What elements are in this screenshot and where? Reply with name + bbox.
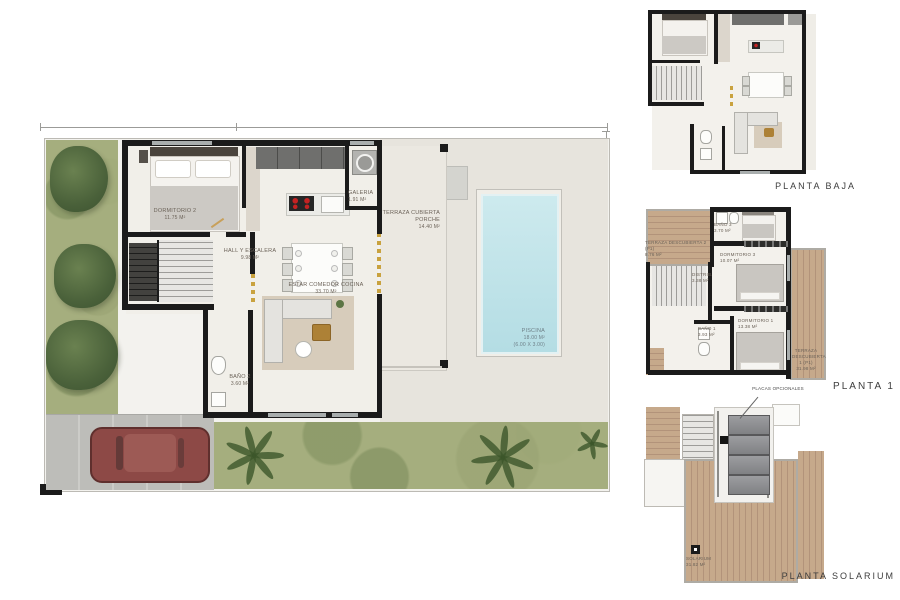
porch-edge-line (382, 366, 442, 368)
dimension-tick (602, 131, 610, 132)
dimension-line-top (40, 127, 608, 128)
wall (345, 206, 381, 210)
room-name: TERRAZA CUBIERTA PORCHE (382, 210, 440, 224)
chair (342, 247, 353, 260)
pb-sliding-door-marker (730, 86, 733, 106)
pb-wall (648, 102, 704, 106)
p1-wall (694, 320, 732, 324)
room-name: ESTAR COMEDOR COCINA (280, 282, 372, 289)
room-area: 31.82 m² (686, 562, 726, 568)
kitchen-sink (321, 196, 344, 213)
wall (226, 232, 246, 237)
room-name: TERRAZA DESCUBIERTA 2 (P1) (645, 240, 715, 252)
brochure-canvas: DORMITORIO 2 11.75 m² HALL Y ESCALERA 9.… (0, 0, 900, 600)
pb-bed-blanket (662, 36, 706, 54)
window (350, 141, 374, 145)
pb-window (740, 171, 770, 174)
p1-window (787, 330, 790, 360)
bathroom-sink (211, 392, 226, 407)
room-area: 3.93 m² (698, 332, 728, 338)
room-area: 33.70 m² (280, 289, 372, 296)
p1-bed-dorm3-pillows (740, 292, 780, 300)
small-plant (572, 424, 608, 458)
wall (122, 304, 214, 310)
placas-opcionales-annotation: PLACAS OPCIONALES (740, 386, 816, 392)
porch-pillar (440, 144, 448, 152)
p1-window (787, 255, 790, 281)
pb-wall (650, 60, 700, 63)
pb-chair (784, 76, 792, 86)
solar-panel (728, 435, 770, 455)
room-label-distrib: DISTRIB. 3.38 m² (692, 272, 722, 284)
room-area: 9.98 m² (205, 255, 295, 262)
p1-wall (708, 262, 712, 320)
p1-wardrobe (744, 241, 788, 247)
pb-dining-table (748, 72, 784, 98)
pb-wall (648, 10, 652, 106)
room-label-bano-3: BAÑO 3 3.70 m² (714, 222, 744, 234)
room-name: HALL Y ESCALERA (205, 248, 295, 255)
wall (248, 310, 253, 418)
covered-porch (380, 146, 447, 371)
pb-wall (802, 10, 806, 174)
pb-wall (722, 126, 725, 174)
sliding-door-marker (251, 272, 255, 302)
room-name: GALERIA (348, 190, 382, 197)
room-name: PISCINA (493, 328, 545, 335)
pb-wall (690, 124, 694, 174)
room-area: 3.60 m² (215, 381, 265, 388)
room-label-hall: HALL Y ESCALERA 9.98 m² (205, 248, 295, 262)
sofa-chaise (264, 299, 283, 363)
p1-wardrobe (744, 306, 788, 312)
room-area: 1.91 m² (348, 197, 382, 204)
sol-wood-strip-right (798, 451, 824, 579)
room-area: 10.07 m² (720, 258, 774, 264)
pb-wall (714, 10, 718, 64)
pb-stairs (652, 66, 702, 100)
solar-panel (728, 415, 770, 435)
cooktop (289, 196, 314, 211)
room-area: 14.40 m² (382, 224, 440, 231)
solar-panel (728, 455, 770, 475)
palm-tree (214, 418, 290, 486)
kitchen-cabinets (256, 147, 345, 169)
sol-wood-strip-tl (646, 407, 680, 461)
annotation-text: PLACAS OPCIONALES (740, 386, 816, 392)
pb-toilet (700, 130, 712, 144)
p1-bed-a-blanket (742, 224, 774, 238)
pb-chair (784, 86, 792, 96)
bed-headboard (150, 147, 238, 156)
coffee-table (295, 341, 312, 358)
pool-dimensions: (6.00 x 3.00) (493, 342, 545, 349)
room-label-piscina: PISCINA 18.00 m² (6.00 x 3.00) (493, 328, 545, 348)
room-label-bano-1: BAÑO 1 3.93 m² (698, 326, 728, 338)
pb-chair (742, 76, 750, 86)
p1-wall (714, 241, 744, 246)
washing-machine (352, 150, 377, 175)
planta-solarium-title: PLANTA SOLARIUM (765, 571, 895, 581)
pb-porch (806, 14, 816, 170)
p1-bath1-toilet (698, 342, 710, 356)
window (332, 413, 358, 417)
room-area: 3.70 m² (714, 228, 744, 234)
room-name: BAÑO 2 (215, 374, 265, 381)
pillow (155, 160, 191, 178)
place-setting (295, 250, 302, 257)
sliding-door-marker (377, 233, 381, 293)
room-label-solarium: SOLARIUM 31.82 m² (686, 556, 726, 568)
solar-panel (728, 475, 770, 495)
window (268, 413, 326, 417)
room-name: DORMITORIO 2 (140, 208, 210, 215)
pillow (195, 160, 231, 178)
room-label-porche: TERRAZA CUBIERTA PORCHE 14.40 m² (382, 210, 440, 231)
room-label-dormitorio-2: DORMITORIO 2 11.75 m² (140, 208, 210, 222)
place-setting (331, 250, 338, 257)
room-label-bano-2: BAÑO 2 3.60 m² (215, 374, 265, 388)
wall (122, 140, 128, 310)
room-label-estar: ESTAR COMEDOR COCINA 33.70 m² (280, 282, 372, 296)
room-name: TERRAZA DESCUBIERTA 1 (P1) (792, 348, 820, 366)
room-label-galeria: GALERIA 1.91 m² (348, 190, 382, 204)
plant-pot (336, 300, 344, 308)
room-area: 3.38 m² (692, 278, 722, 284)
pb-sink (700, 148, 712, 160)
armchair (312, 324, 331, 341)
pb-wardrobe (718, 12, 730, 62)
chair (282, 263, 293, 276)
room-area: 8.76 m² (645, 252, 715, 258)
wall (203, 310, 208, 418)
room-area: 11.75 m² (140, 215, 210, 222)
car-rear-window (178, 438, 184, 468)
p1-wall (710, 207, 714, 267)
solarium-icon (691, 545, 700, 554)
pb-chair (742, 86, 750, 96)
p1-wall (714, 306, 744, 311)
dimension-tick (236, 123, 237, 131)
p1-wall (712, 207, 790, 212)
car-roof (124, 434, 176, 472)
sol-roof-box (644, 459, 686, 507)
stairs-dark-flight (129, 243, 157, 301)
dimension-tick (607, 123, 608, 131)
p1-bed-dorm1-pillows (740, 362, 780, 370)
p1-wall (648, 370, 790, 375)
place-setting (295, 265, 302, 272)
pb-sofa-chaise (734, 112, 748, 154)
palm-tree (462, 420, 540, 488)
toilet (211, 356, 226, 375)
wall (128, 232, 210, 237)
sol-equipment-box (720, 436, 728, 444)
chair (342, 263, 353, 276)
room-label-dormitorio-3: DORMITORIO 3 10.07 m² (720, 252, 774, 264)
wall (377, 294, 382, 418)
place-setting (331, 265, 338, 272)
room-area: 13.38 m² (738, 324, 786, 330)
room-label-terraza-2: TERRAZA DESCUBIERTA 2 (P1) 8.76 m² (645, 240, 715, 258)
p1-wall (646, 262, 650, 374)
room-label-terraza-1: TERRAZA DESCUBIERTA 1 (P1) 31.98 m² (792, 348, 820, 371)
dimension-tick (40, 123, 41, 131)
solarium-icon-dot (694, 548, 697, 551)
room-label-dormitorio-1: DORMITORIO 1 13.38 m² (738, 318, 786, 330)
pb-armchair (764, 128, 774, 137)
car-windshield (116, 436, 123, 470)
sol-stairs (682, 414, 714, 464)
pb-cooktop (752, 42, 760, 49)
room-area: 31.98 m² (792, 366, 820, 372)
sol-rail (717, 411, 719, 497)
p1-wall (730, 316, 734, 372)
sol-roof-box-tr (772, 404, 800, 426)
wall (242, 144, 246, 208)
window (152, 141, 212, 145)
nightstand (139, 150, 148, 163)
washer-door-icon (356, 154, 374, 172)
pb-wall (648, 10, 806, 14)
planta-baja-title: PLANTA BAJA (754, 181, 856, 191)
